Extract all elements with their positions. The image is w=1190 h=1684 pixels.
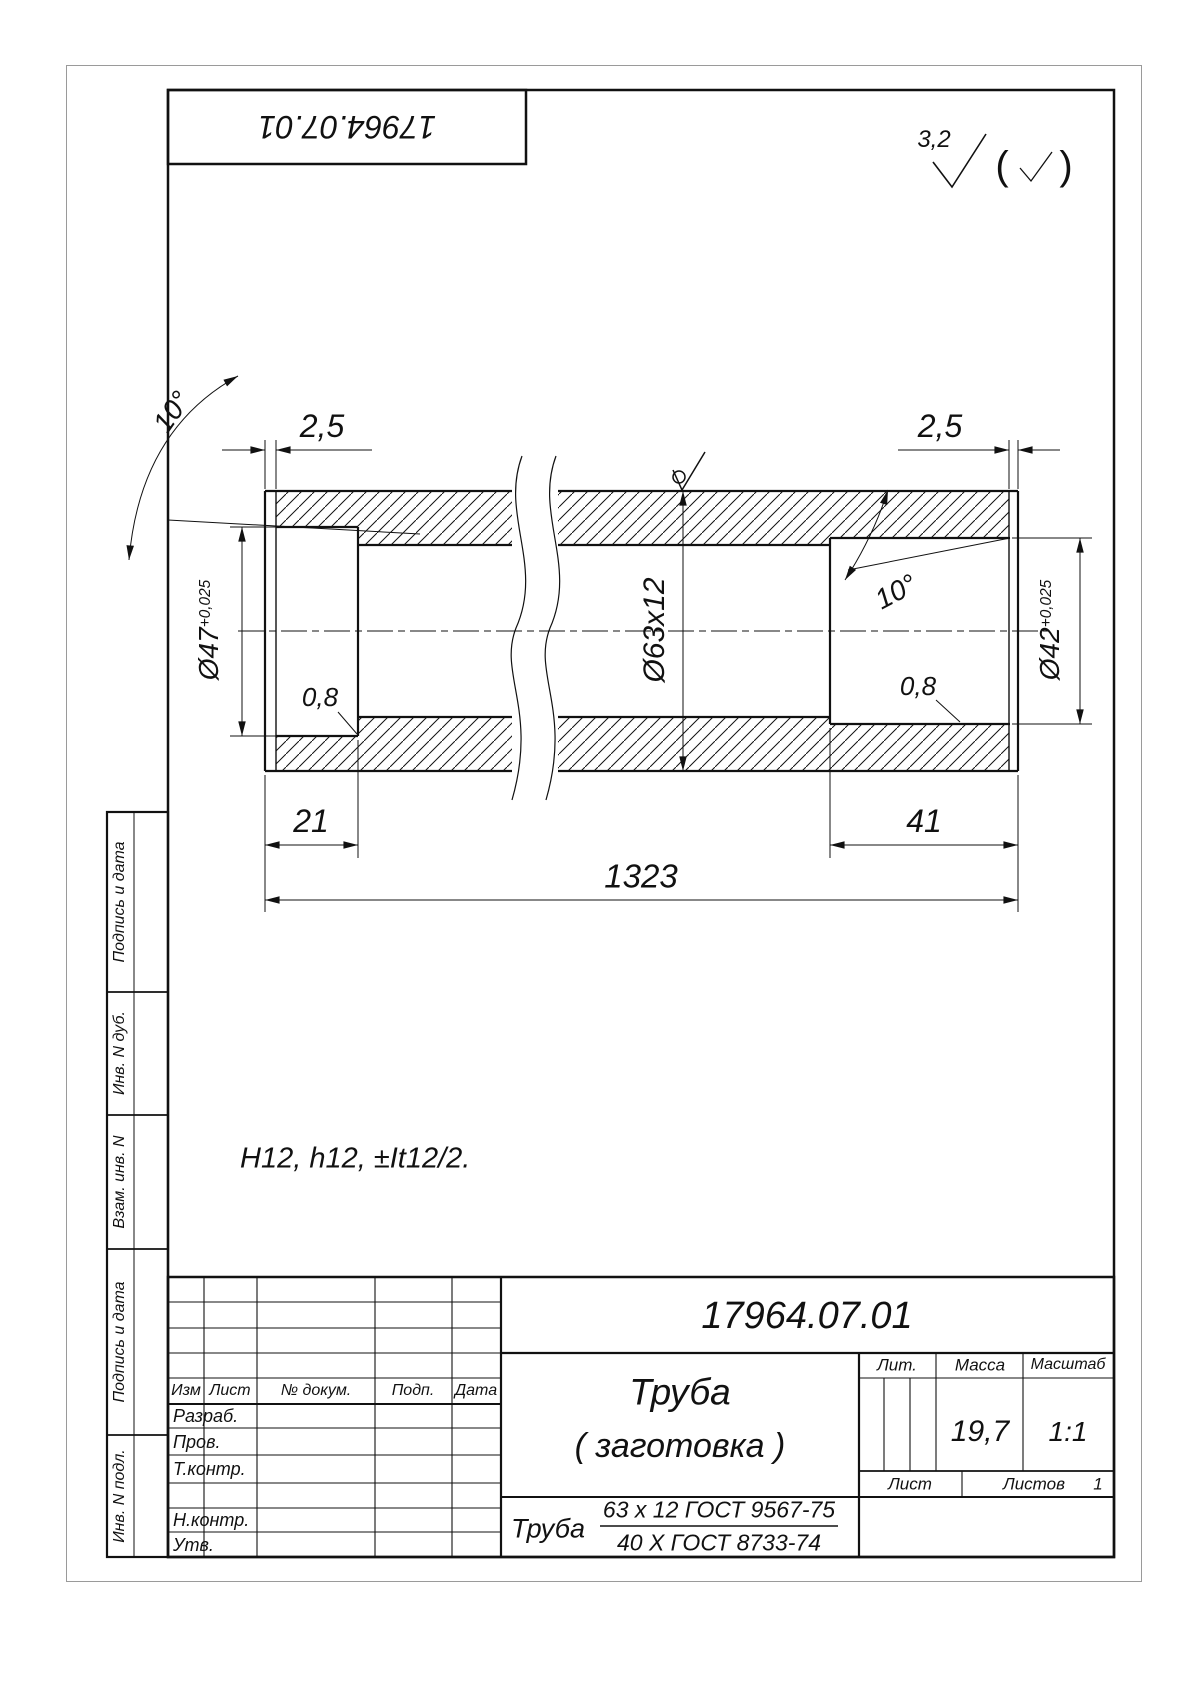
row-tkontr: Т.контр. — [173, 1460, 246, 1478]
row-nkontr: Н.контр. — [173, 1511, 249, 1529]
dim-bore-left-value: Ø47 — [193, 627, 224, 680]
row-utv: Утв. — [173, 1536, 214, 1554]
row-prov: Пров. — [173, 1433, 220, 1451]
side-label-inv-dub: Инв. N дуб. — [112, 1011, 128, 1095]
dim-tube-section: Ø63x12 — [640, 577, 670, 682]
label-masshtab: Масштаб — [1031, 1357, 1106, 1373]
titleblock-part-name: Труба — [629, 1374, 730, 1411]
col-header-podp: Подп. — [392, 1383, 435, 1399]
material-denominator: 40 Х ГОСТ 8733-74 — [617, 1532, 821, 1555]
dim-chamfer-right: 0,8 — [900, 673, 936, 699]
side-label-vzam-inv: Взам. инв. N — [112, 1135, 128, 1228]
dim-depth-left: 21 — [293, 805, 329, 837]
surface-symbol-icon — [673, 452, 705, 490]
stamp-doc-number: 17964.07.01 — [258, 111, 436, 143]
general-note: H12, h12, ±It12/2. — [240, 1145, 470, 1174]
dim-length: 1323 — [604, 860, 677, 893]
side-label-inv-podl: Инв. N подл. — [112, 1449, 128, 1543]
col-header-izm: Изм — [171, 1383, 201, 1399]
value-massa: 19,7 — [951, 1417, 1009, 1447]
material-numerator: 63 x 12 ГОСТ 9567-75 — [603, 1499, 835, 1522]
material-prefix: Труба — [511, 1516, 585, 1543]
dim-bore-right-tol: +0,025 — [1038, 580, 1055, 628]
dim-bore-left-tol: +0,025 — [197, 580, 214, 628]
side-label-podpis-1: Подпись и дата — [112, 841, 128, 962]
roughness-paren-close: ) — [1059, 146, 1072, 186]
dim-end-width-left: 2,5 — [300, 410, 344, 442]
col-header-data: Дата — [455, 1383, 497, 1399]
label-sheets: Листов — [1003, 1476, 1065, 1493]
label-massa: Масса — [955, 1357, 1005, 1374]
col-header-list: Лист — [209, 1383, 250, 1399]
dim-bore-right: Ø42+0,025 — [1036, 580, 1064, 680]
dim-bore-right-value: Ø42 — [1034, 627, 1065, 680]
dim-bore-left: Ø47+0,025 — [195, 580, 223, 680]
roughness-value: 3,2 — [917, 128, 950, 152]
label-lit: Лит. — [877, 1357, 917, 1374]
dim-chamfer-left: 0,8 — [302, 684, 338, 710]
roughness-mark-icon — [933, 134, 1052, 187]
value-sheets: 1 — [1093, 1476, 1102, 1493]
side-label-podpis-2: Подпись и дата — [112, 1281, 128, 1402]
drawing-sheet: 17964.07.01 3,2 ( ) 2,5 2,5 10° 10° Ø47+… — [0, 0, 1190, 1684]
row-razrab: Разраб. — [173, 1407, 238, 1425]
value-masshtab: 1:1 — [1049, 1418, 1088, 1446]
label-sheet: Лист — [888, 1476, 932, 1493]
titleblock-part-name-2: ( заготовка ) — [575, 1429, 786, 1463]
dim-depth-right: 41 — [906, 805, 942, 837]
dim-end-width-right: 2,5 — [918, 410, 962, 442]
dimension-lines — [129, 376, 1092, 912]
col-header-dokum: № докум. — [281, 1383, 351, 1399]
break-lines — [511, 456, 559, 800]
titleblock-doc-number: 17964.07.01 — [701, 1297, 912, 1335]
roughness-paren-open: ( — [995, 146, 1008, 186]
